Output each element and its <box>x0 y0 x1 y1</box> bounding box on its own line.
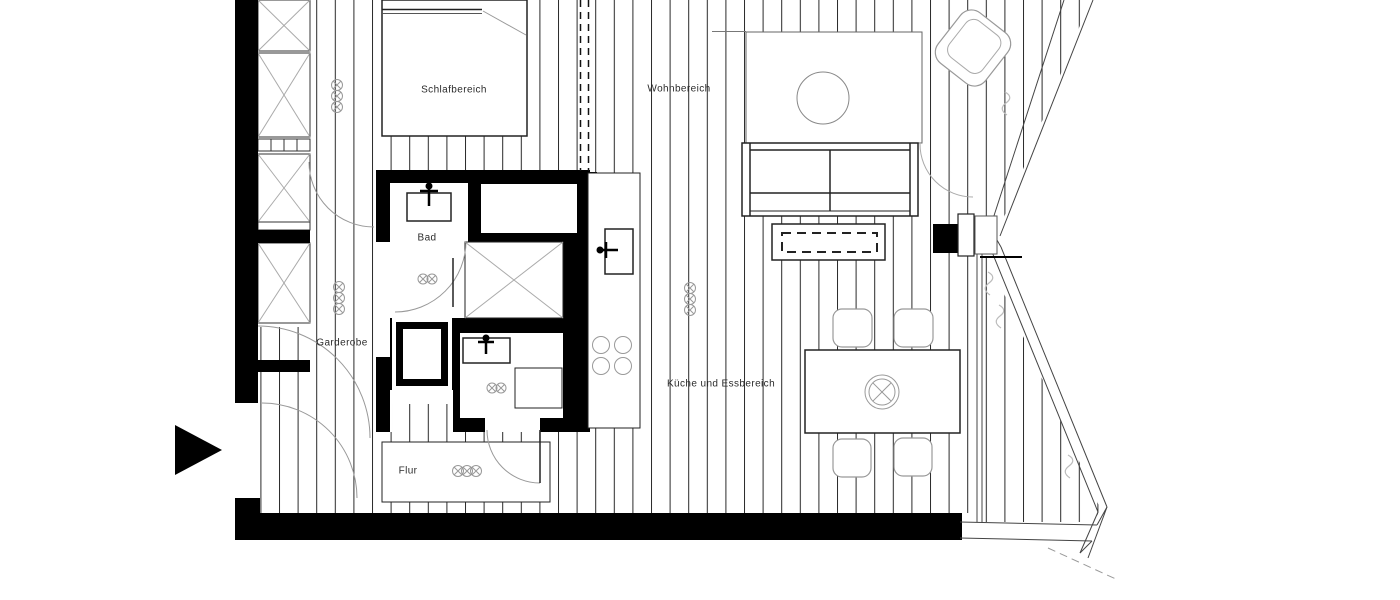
kitchen-counter <box>588 173 640 428</box>
floor-plan: Schlafbereich Wohnbereich Bad Garderobe … <box>0 0 1400 600</box>
closet-divider <box>258 360 310 372</box>
wall-bottom <box>258 513 962 540</box>
tv-sideboard <box>772 224 885 260</box>
facade-corner-post <box>975 216 997 254</box>
wall-left <box>235 0 258 403</box>
utility-niche <box>481 184 577 233</box>
facade-mullion <box>958 214 974 256</box>
bed <box>382 0 527 136</box>
closet-divider <box>258 230 310 243</box>
label-schlafbereich: Schlafbereich <box>421 85 487 96</box>
label-bad: Bad <box>418 233 437 244</box>
label-kueche: Küche und Essbereich <box>667 379 775 390</box>
shower-tray <box>392 318 452 390</box>
shower <box>465 242 563 318</box>
kitchen-sink <box>605 229 633 274</box>
sofa <box>742 143 918 216</box>
wardrobe-closets <box>258 0 310 323</box>
label-garderobe: Garderobe <box>316 338 367 349</box>
wc-toilet <box>515 368 562 408</box>
coffee-table <box>797 72 849 124</box>
closet-shelf <box>258 222 310 230</box>
bad-door-opening <box>376 242 390 357</box>
label-wohnbereich: Wohnbereich <box>647 84 710 95</box>
column <box>933 224 958 253</box>
wall-left-bottom <box>235 498 260 540</box>
wc-door-opening <box>485 418 540 432</box>
label-flur: Flur <box>399 466 418 477</box>
